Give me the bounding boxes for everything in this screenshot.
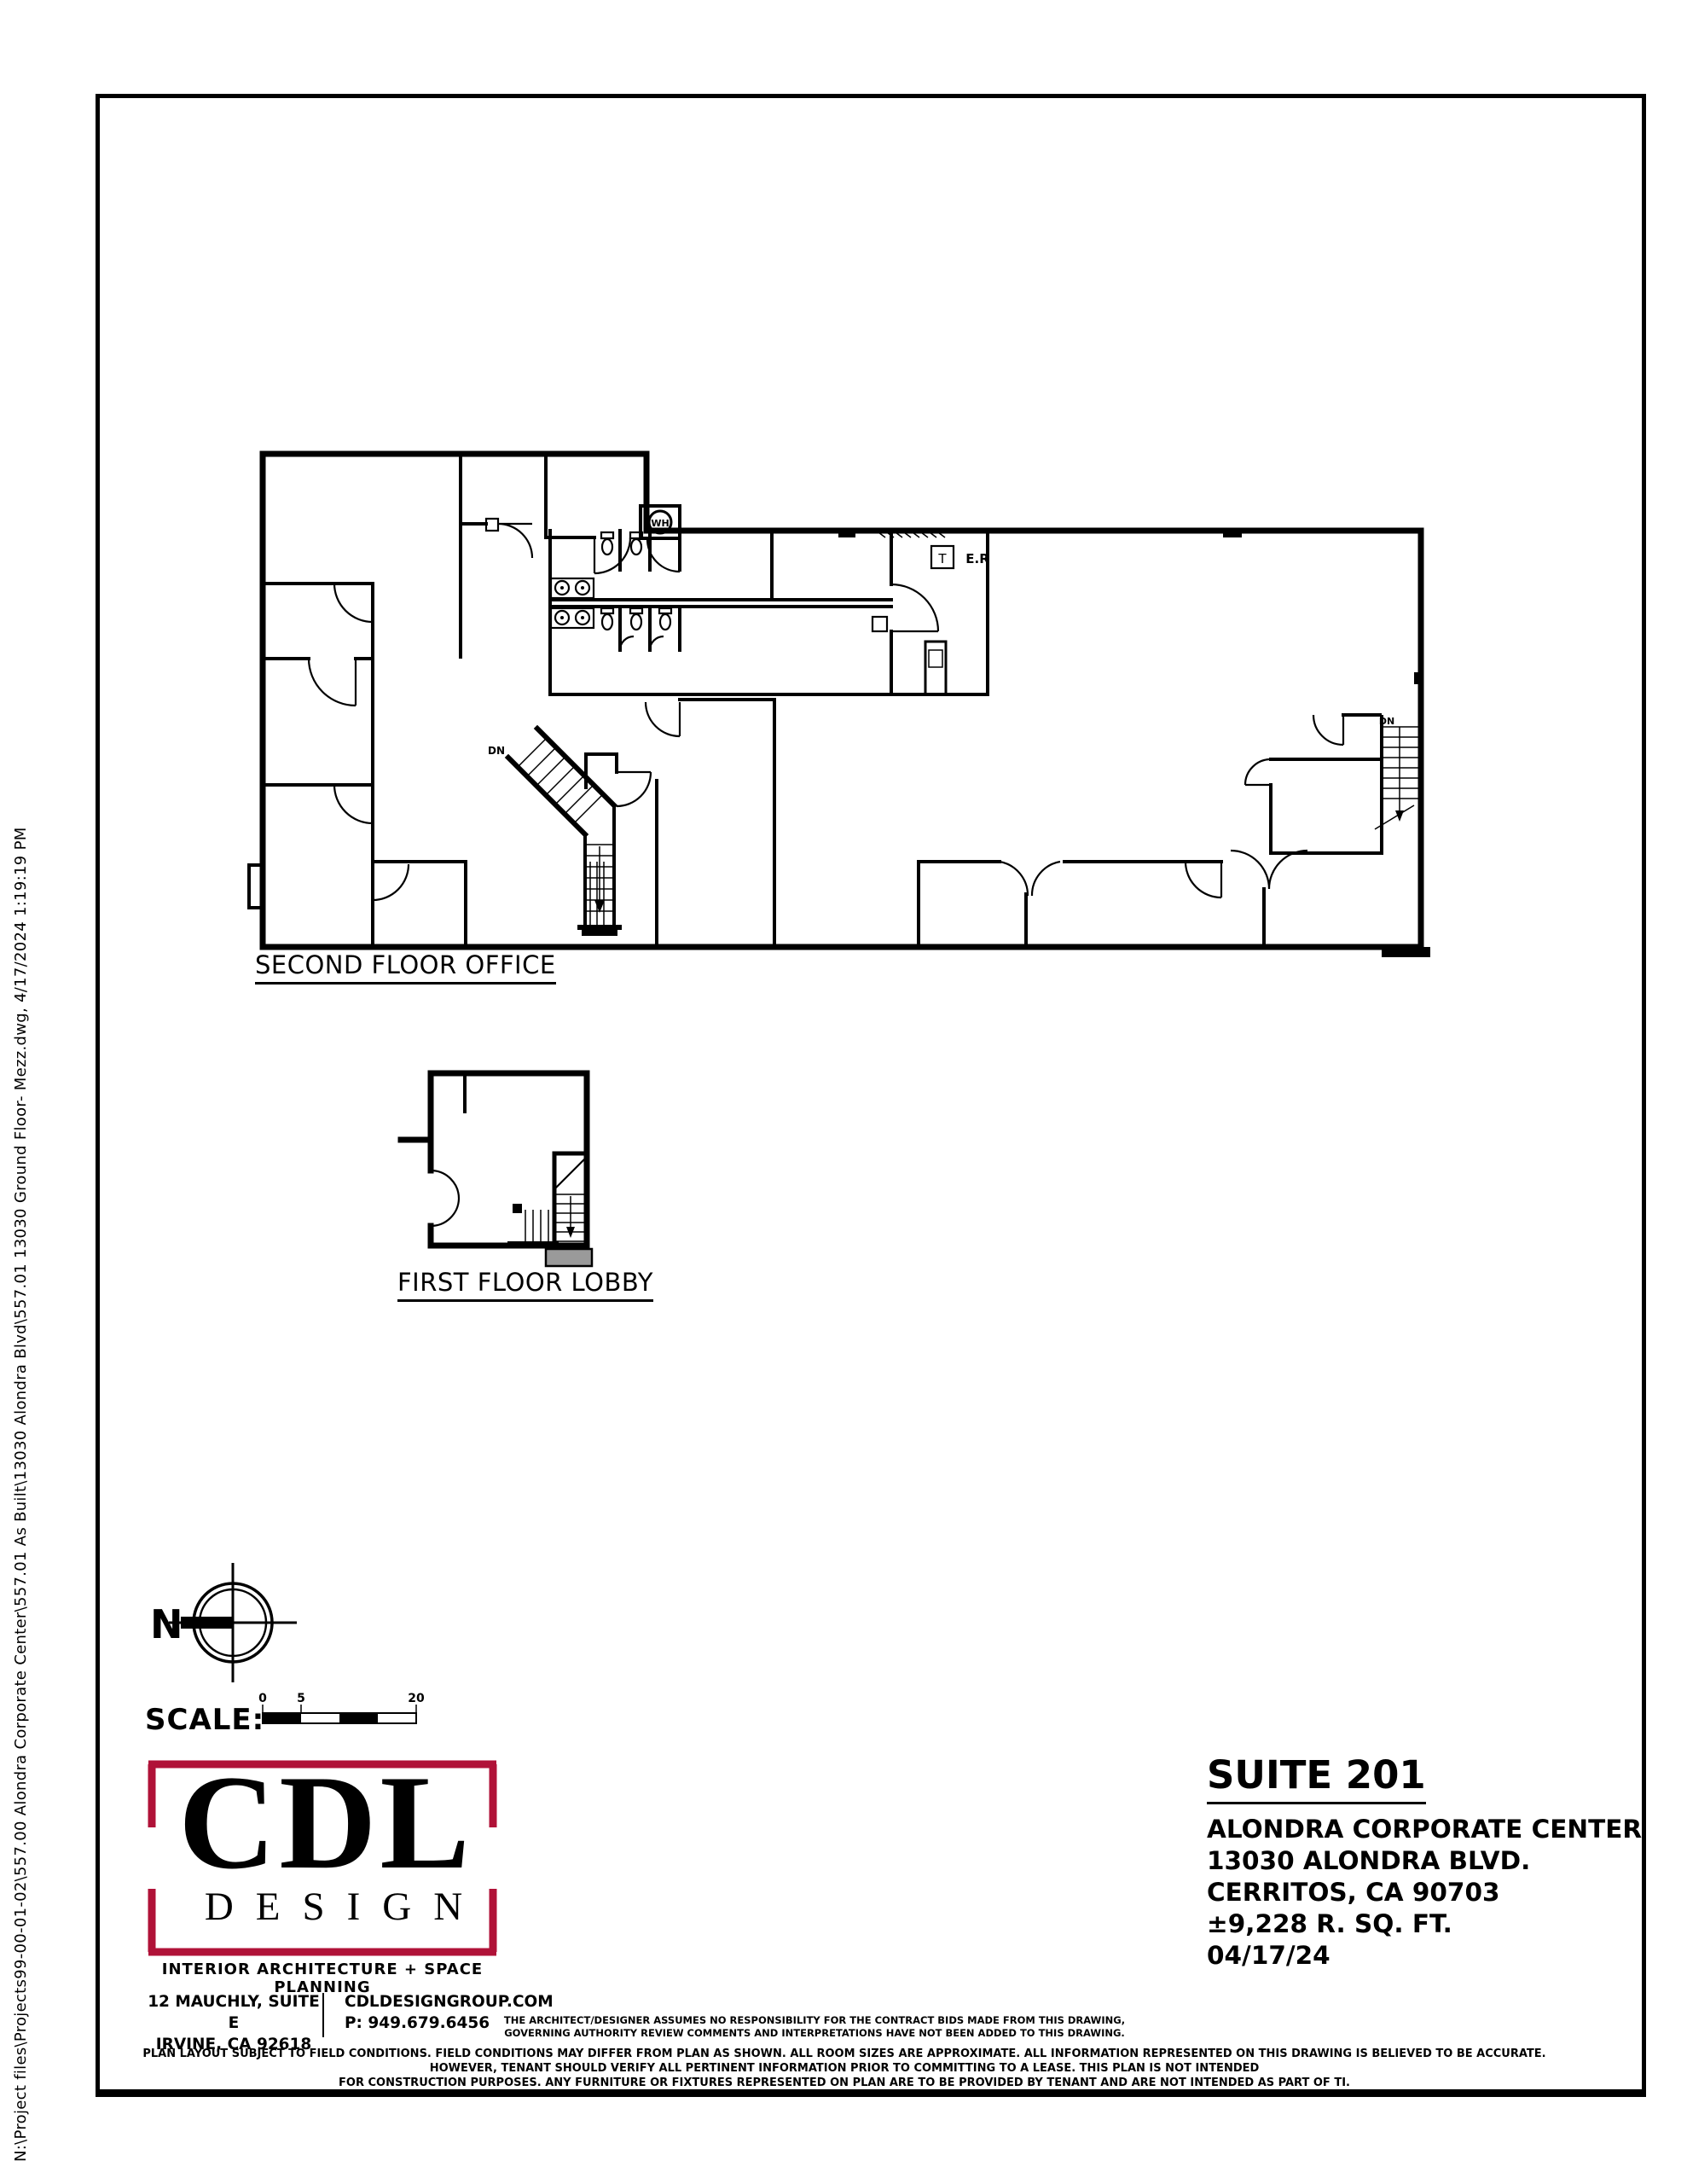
city-state-zip: CERRITOS, CA 90703 [1207, 1877, 1642, 1908]
svg-text:DN: DN [488, 745, 505, 757]
street-address: 13030 ALONDRA BLVD. [1207, 1845, 1642, 1877]
central-stair: DN [488, 729, 619, 936]
second-floor-label: SECOND FLOOR OFFICE [255, 950, 556, 985]
logo-phone: P: 949.679.6456 [345, 2013, 524, 2034]
building-name: ALONDRA CORPORATE CENTER [1207, 1814, 1642, 1845]
logo-cdl: CDL [147, 1759, 501, 1887]
svg-text:E.R: E.R [965, 551, 989, 566]
svg-text:WH: WH [651, 518, 669, 529]
logo-website: CDLDESIGNGROUP.COM [345, 1991, 524, 2013]
scale-bar: 0 5 20 [256, 1691, 426, 1728]
lobby-stair [510, 1153, 592, 1266]
drawing-date: 04/17/24 [1207, 1940, 1642, 1972]
logo-contact: CDLDESIGNGROUP.COM P: 949.679.6456 [345, 1991, 524, 2034]
file-path-note: N:\Project files\Projects99-00-01-02\557… [12, 1078, 30, 2162]
suite-title: SUITE 201 [1207, 1752, 1426, 1804]
plan-disclaimer: PLAN LAYOUT SUBJECT TO FIELD CONDITIONS.… [110, 2047, 1579, 2090]
svg-text:DN: DN [1379, 716, 1394, 727]
svg-text:0: 0 [258, 1692, 267, 1705]
area-sqft: ±9,228 R. SQ. FT. [1207, 1908, 1642, 1940]
first-floor-plan-drawing [388, 1058, 652, 1280]
drawing-sheet: N:\Project files\Projects99-00-01-02\557… [0, 0, 1687, 2184]
scale-label: SCALE: [145, 1703, 264, 1737]
first-floor-label: FIRST FLOOR LOBBY [397, 1268, 653, 1302]
logo-design: DESIGN [147, 1884, 520, 1930]
restroom-fixtures [551, 532, 887, 650]
address-divider [322, 1993, 324, 2037]
door-swings [309, 524, 1343, 900]
logo-address: 12 MAUCHLY, SUITE E IRVINE, CA 92618 [147, 1991, 321, 2055]
svg-text:20: 20 [408, 1692, 425, 1705]
title-block: ALONDRA CORPORATE CENTER 13030 ALONDRA B… [1207, 1814, 1642, 1972]
svg-text:N: N [150, 1601, 183, 1647]
second-floor-plan-drawing: WH T E.R [239, 431, 1433, 994]
svg-text:5: 5 [297, 1692, 305, 1705]
svg-text:T: T [937, 551, 947, 566]
architect-disclaimer: THE ARCHITECT/DESIGNER ASSUMES NO RESPON… [503, 2014, 1126, 2040]
north-arrow-icon: N [136, 1558, 320, 1690]
